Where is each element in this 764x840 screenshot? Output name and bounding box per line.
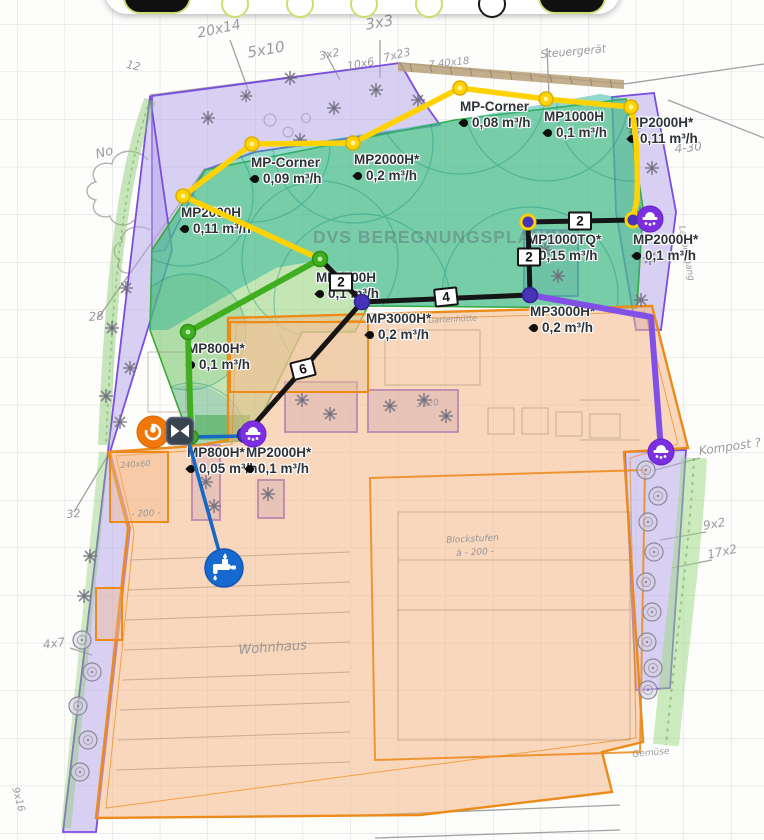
pipe-node-yellow-ring[interactable]	[521, 215, 535, 229]
sprinkler-head-icon[interactable]	[240, 421, 266, 447]
sprinkler-head-icon[interactable]	[648, 439, 674, 465]
pipe-node[interactable]	[523, 288, 538, 303]
pipe-black[interactable]	[528, 220, 633, 222]
pipe-black[interactable]	[528, 222, 530, 295]
sprinkler-node[interactable]	[245, 137, 259, 151]
sprinkler-node[interactable]	[539, 92, 553, 106]
toolbar-menu-pill-button[interactable]	[123, 0, 191, 14]
controller-icon[interactable]	[137, 416, 169, 448]
pipe-black[interactable]	[320, 259, 362, 302]
sprinkler-node[interactable]	[176, 189, 190, 203]
irrigation-overlay	[0, 0, 764, 840]
sprinkler-node[interactable]	[346, 136, 360, 150]
toolbar-menu-pill-button[interactable]	[538, 0, 606, 14]
green-nodes	[181, 252, 328, 445]
pipe-yellow[interactable]	[183, 196, 320, 259]
pipe-yellow[interactable]	[183, 88, 637, 217]
sprinkler-node[interactable]	[624, 100, 638, 114]
water-tap-icon[interactable]	[205, 549, 243, 587]
sprinkler-node[interactable]	[313, 252, 328, 267]
irrigation-planner-canvas: 20x14 5x10 3x2 3x3 10x6 7x23 7 40x18 Ste…	[0, 0, 764, 840]
pipe-purple[interactable]	[530, 295, 661, 450]
pipe-green[interactable]	[188, 259, 320, 437]
sprinkler-head-icon[interactable]	[637, 206, 663, 232]
pipe-black[interactable]	[362, 295, 530, 302]
pipe-black[interactable]	[245, 302, 362, 435]
pipe-node[interactable]	[355, 295, 370, 310]
toolbar	[105, 0, 620, 14]
sprinkler-node[interactable]	[181, 325, 196, 340]
sprinkler-node[interactable]	[453, 81, 467, 95]
pipe-blue[interactable]	[189, 443, 222, 562]
valve-icon[interactable]	[167, 418, 194, 445]
